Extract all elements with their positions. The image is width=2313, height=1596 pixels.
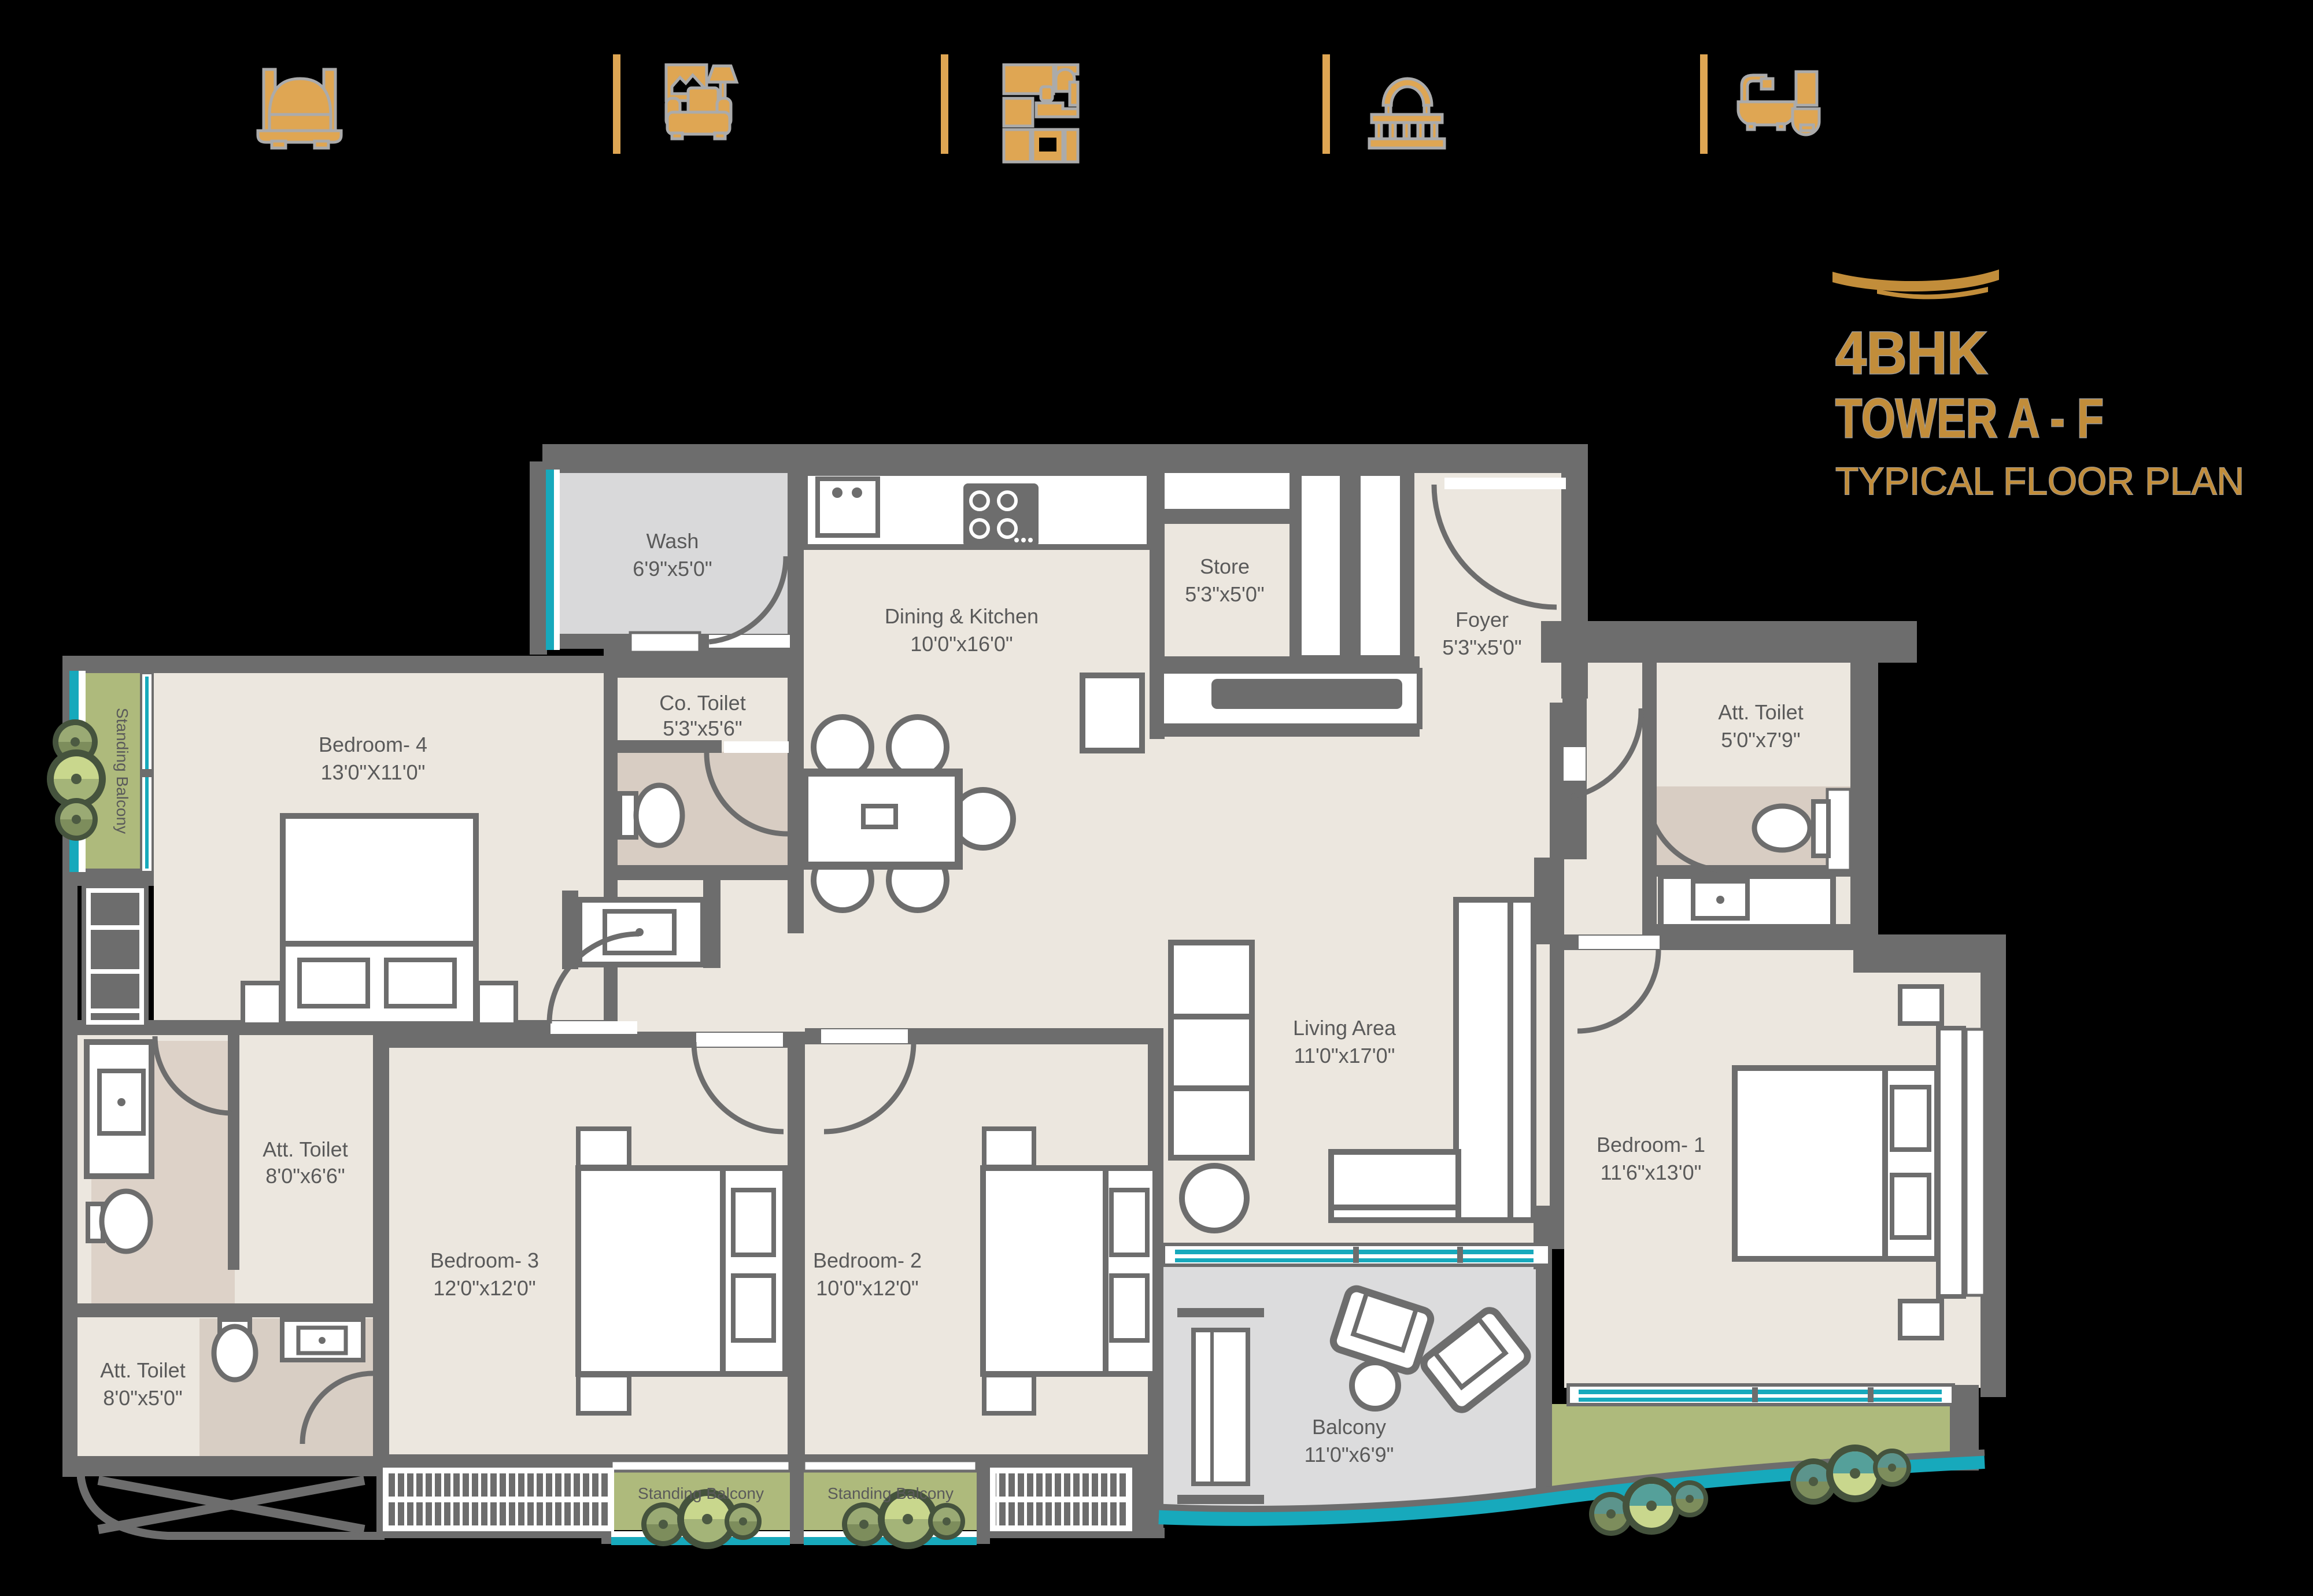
svg-text:TYPICAL FLOOR PLAN: TYPICAL FLOOR PLAN (1835, 460, 2244, 503)
svg-text:11'0"x17'0": 11'0"x17'0" (1294, 1044, 1395, 1067)
svg-text:5'3"x5'0": 5'3"x5'0" (1442, 636, 1521, 659)
svg-text:Att. Toilet: Att. Toilet (100, 1358, 185, 1382)
svg-text:Bedroom- 3: Bedroom- 3 (430, 1248, 539, 1272)
svg-text:Dining & Kitchen: Dining & Kitchen (885, 604, 1039, 628)
svg-text:10'0"x16'0": 10'0"x16'0" (910, 632, 1013, 656)
svg-text:Co. Toilet: Co. Toilet (659, 691, 745, 715)
svg-text:Foyer: Foyer (1455, 608, 1509, 631)
svg-text:5'3"x5'6": 5'3"x5'6" (663, 716, 742, 740)
svg-text:11'0"x6'9": 11'0"x6'9" (1305, 1443, 1394, 1466)
svg-text:Standing Balcony: Standing Balcony (638, 1484, 764, 1502)
svg-text:4BHK: 4BHK (1835, 320, 1987, 387)
svg-text:Living Area: Living Area (1293, 1016, 1396, 1040)
svg-text:Store: Store (1200, 555, 1250, 578)
svg-text:Standing Balcony: Standing Balcony (827, 1484, 954, 1502)
svg-text:5'3"x5'0": 5'3"x5'0" (1185, 582, 1264, 606)
svg-text:6'9"x5'0": 6'9"x5'0" (633, 557, 712, 581)
svg-text:8'0"x6'6": 8'0"x6'6" (265, 1164, 345, 1188)
svg-text:5'0"x7'9": 5'0"x7'9" (1721, 728, 1800, 752)
svg-text:10'0"x12'0": 10'0"x12'0" (816, 1276, 918, 1300)
svg-text:11'6"x13'0": 11'6"x13'0" (1601, 1161, 1702, 1184)
svg-text:Att. Toilet: Att. Toilet (1718, 700, 1803, 724)
svg-text:Wash: Wash (646, 529, 699, 553)
svg-text:Att. Toilet: Att. Toilet (263, 1137, 348, 1161)
svg-text:Bedroom- 4: Bedroom- 4 (319, 733, 427, 756)
svg-text:Balcony: Balcony (1312, 1415, 1386, 1439)
svg-text:12'0"x12'0": 12'0"x12'0" (433, 1276, 535, 1300)
svg-text:Bedroom- 1: Bedroom- 1 (1597, 1133, 1705, 1157)
svg-text:TOWER A - F: TOWER A - F (1835, 387, 2104, 449)
svg-text:8'0"x5'0": 8'0"x5'0" (103, 1386, 182, 1410)
svg-text:Standing Balcony: Standing Balcony (113, 708, 131, 834)
svg-text:13'0"X11'0": 13'0"X11'0" (321, 760, 426, 784)
svg-text:Bedroom- 2: Bedroom- 2 (813, 1248, 922, 1272)
